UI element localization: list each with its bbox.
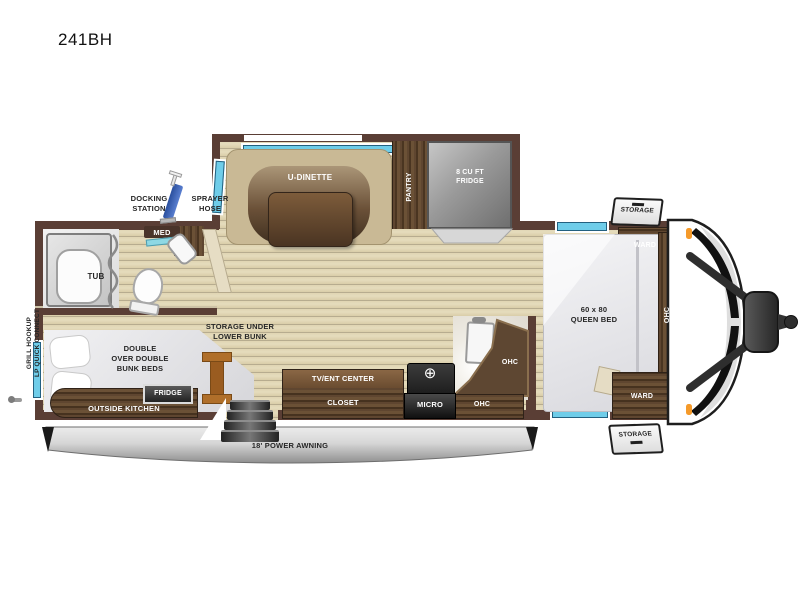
bunk-ladder-rail bbox=[210, 361, 224, 395]
outside-kitchen-label: OUTSIDE KITCHEN bbox=[58, 404, 190, 414]
storage-flap-front-latch bbox=[632, 203, 644, 206]
ward-front-label: WARD bbox=[618, 241, 672, 250]
storage-flap-front: STORAGE bbox=[610, 197, 664, 227]
grill-hookup-label-wrap: GRILL HOOKUP LP QUICK CONNECT bbox=[25, 293, 43, 393]
closet-label: CLOSET bbox=[284, 398, 402, 408]
tv-label: TV/ENT CENTER bbox=[284, 374, 402, 384]
hitch-ball bbox=[785, 316, 798, 329]
entry-step-1 bbox=[230, 400, 270, 410]
propane-cover bbox=[744, 292, 778, 352]
fridge-main-label: 8 CU FT FRIDGE bbox=[439, 168, 501, 186]
grill-hookup-knob-icon bbox=[8, 396, 15, 403]
pantry-label-wrap: PANTRY bbox=[404, 157, 416, 217]
entry-step-2 bbox=[227, 410, 273, 420]
front-cap bbox=[668, 220, 745, 424]
floor-plan: ⊕ bbox=[0, 0, 800, 600]
slideout-wall-right bbox=[512, 134, 520, 229]
docking-label: DOCKING STATION bbox=[118, 194, 180, 214]
awning-endcap-right bbox=[526, 427, 538, 450]
bunk-ladder-bottom bbox=[202, 394, 232, 404]
entry-step-3 bbox=[224, 420, 276, 430]
hitch-frame-lower bbox=[690, 340, 754, 388]
bedroom-ohc-label: OHC bbox=[663, 285, 672, 345]
ohc-corner-label: OHC bbox=[492, 358, 528, 367]
hitch-coupler bbox=[778, 314, 789, 330]
front-cap-shade bbox=[700, 226, 741, 418]
ward-rear-label: WARD bbox=[616, 392, 668, 401]
grill-hookup-label: GRILL HOOKUP LP QUICK CONNECT bbox=[26, 293, 43, 393]
bunks-label: DOUBLE OVER DOUBLE BUNK BEDS bbox=[92, 344, 188, 373]
storage-flap-front-label: STORAGE bbox=[614, 206, 661, 216]
storage-flap-rear: STORAGE bbox=[608, 423, 664, 455]
bedroom-ohc-label-wrap: OHC bbox=[662, 285, 674, 345]
outside-kitchen-fridge-label: FRIDGE bbox=[145, 389, 191, 398]
front-cap-swoosh-bottom bbox=[691, 326, 739, 416]
med-label: MED bbox=[144, 228, 180, 238]
marker-light-bottom bbox=[686, 404, 692, 415]
kitchen-faucet bbox=[472, 317, 486, 323]
front-cap-swoosh-top bbox=[691, 228, 739, 318]
tub-label: TUB bbox=[72, 272, 120, 282]
ohc-lower-label: OHC bbox=[458, 400, 506, 409]
pantry-label: PANTRY bbox=[405, 157, 414, 217]
sprayer-label: SPRAYER HOSE bbox=[182, 194, 238, 214]
plan-title: 241BH bbox=[58, 30, 112, 50]
storage-flap-rear-latch bbox=[630, 441, 642, 444]
storage-flap-rear-label: STORAGE bbox=[611, 430, 660, 440]
awning-label: 18' POWER AWNING bbox=[215, 441, 365, 451]
micro-label: MICRO bbox=[406, 400, 454, 410]
dinette-label: U-DINETTE bbox=[260, 173, 360, 183]
marker-light-top bbox=[686, 228, 692, 239]
hitch-frame-upper bbox=[690, 256, 754, 304]
burner-icon: ⊕ bbox=[422, 366, 438, 382]
window-bedroom-top bbox=[557, 222, 607, 231]
queen-bed-label: 60 x 80 QUEEN BED bbox=[556, 305, 632, 325]
bunk-pillow-1 bbox=[48, 334, 91, 370]
window-slideout-top-exterior bbox=[244, 135, 362, 141]
dinette-table bbox=[268, 192, 353, 247]
awning-endcap-left bbox=[42, 427, 54, 452]
storage-under-label: STORAGE UNDER LOWER BUNK bbox=[192, 322, 288, 342]
kitchen-sink bbox=[465, 321, 495, 364]
